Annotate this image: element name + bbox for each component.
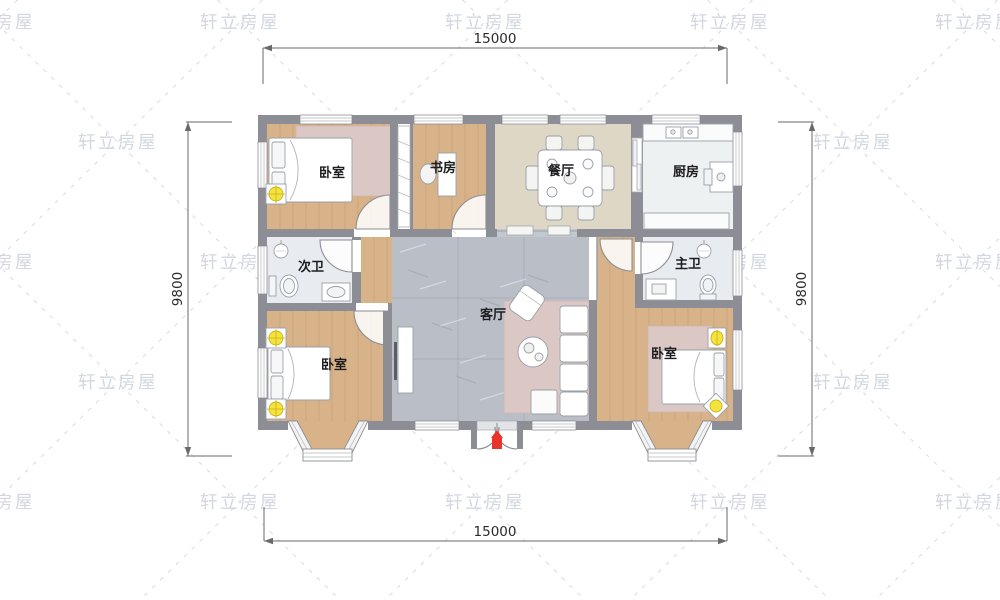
watermark-text: 轩立房屋 bbox=[935, 493, 1000, 513]
dimension-top: 15000 bbox=[263, 31, 727, 84]
watermark-text: 轩立房屋 bbox=[78, 373, 158, 393]
wall-study-dining bbox=[486, 124, 495, 229]
wall-bath2-bottom-stub bbox=[388, 303, 392, 311]
watermark-text: 轩立房屋 bbox=[813, 373, 893, 393]
watermark-text: 轩立房屋 bbox=[200, 13, 280, 33]
dimension-top-value: 15000 bbox=[474, 31, 517, 47]
watermark-text: 轩立房屋 bbox=[200, 493, 280, 513]
window-symbol bbox=[300, 115, 352, 124]
wardrobe-strip bbox=[398, 126, 410, 227]
floor-plan-svg: 轩立房屋轩立房屋轩立房屋轩立房屋轩立房屋轩立房屋轩立房屋轩立房屋轩立房屋轩立房屋… bbox=[0, 0, 1000, 600]
watermark-text: 轩立房屋 bbox=[0, 493, 35, 513]
watermark-text: 轩立房屋 bbox=[0, 253, 35, 273]
dimension-right: 9800 bbox=[778, 122, 815, 456]
watermark-text: 轩立房屋 bbox=[935, 13, 1000, 33]
room-label-bath-secondary: 次卫 bbox=[298, 259, 324, 275]
room-label-study: 书房 bbox=[430, 160, 456, 176]
wall-bedroom2-right bbox=[383, 311, 392, 421]
wall-bath1-left-a bbox=[635, 237, 643, 242]
watermark-text: 轩立房屋 bbox=[445, 493, 525, 513]
window-symbol bbox=[652, 115, 700, 124]
room-label-living: 客厅 bbox=[480, 307, 506, 323]
ceiling-lamp-icon bbox=[708, 328, 726, 348]
wall-bottom-seg1 bbox=[258, 421, 288, 430]
wall-bath1-left-b bbox=[635, 274, 643, 300]
watermark-text: 轩立房屋 bbox=[690, 493, 770, 513]
window-symbol bbox=[733, 132, 742, 186]
window-symbol bbox=[258, 348, 267, 398]
room-label-bedroom-bottom-right: 卧室 bbox=[651, 346, 677, 362]
window-symbol bbox=[532, 421, 576, 430]
entrance-post-left bbox=[471, 421, 477, 449]
wall-bath2-right-a bbox=[352, 237, 361, 240]
ceiling-lamp-icon bbox=[266, 328, 286, 348]
room-label-kitchen: 厨房 bbox=[673, 164, 699, 180]
window-symbol bbox=[733, 250, 742, 296]
window-symbol bbox=[415, 421, 459, 430]
coffee-table-symbol bbox=[518, 337, 548, 367]
dimension-right-value: 9800 bbox=[794, 272, 810, 306]
room-label-bedroom-bottom-left: 卧室 bbox=[321, 357, 347, 373]
wall-bottom-seg4 bbox=[712, 421, 742, 430]
room-label-dining: 餐厅 bbox=[547, 163, 574, 179]
entrance-marker-icon bbox=[491, 430, 503, 449]
kitchen-sliding-door bbox=[632, 138, 642, 192]
ceiling-lamp-icon bbox=[266, 184, 286, 204]
watermark-text: 轩立房屋 bbox=[935, 253, 1000, 273]
dimension-bottom-value: 15000 bbox=[474, 524, 517, 540]
entrance-post-right bbox=[517, 421, 523, 449]
watermark-text: 轩立房屋 bbox=[445, 13, 525, 33]
wall-bedroom3-left bbox=[589, 300, 597, 421]
dimension-left: 9800 bbox=[170, 122, 232, 456]
dimension-left-value: 9800 bbox=[170, 272, 186, 306]
ceiling-lamp-icon bbox=[266, 399, 286, 419]
entrance bbox=[477, 421, 517, 449]
wall-h1-c bbox=[486, 229, 497, 237]
window-symbol bbox=[733, 330, 742, 390]
wall-bedroom-study-sliver bbox=[410, 124, 413, 229]
room-label-bedroom-top-left: 卧室 bbox=[319, 165, 345, 181]
wall-bedroom-study bbox=[390, 124, 398, 229]
wall-bath2-right-b bbox=[352, 272, 361, 303]
watermark-text: 轩立房屋 bbox=[0, 13, 35, 33]
wall-bath1-bottom bbox=[635, 300, 733, 308]
floor-plan-page: 轩立房屋轩立房屋轩立房屋轩立房屋轩立房屋轩立房屋轩立房屋轩立房屋轩立房屋轩立房屋… bbox=[0, 0, 1000, 600]
window-symbol bbox=[560, 115, 606, 124]
window-symbol bbox=[502, 115, 548, 124]
window-symbol bbox=[258, 142, 267, 188]
bed-symbol-bottom-left bbox=[268, 347, 330, 400]
window-symbol bbox=[414, 115, 463, 124]
wall-h1-b bbox=[390, 229, 452, 237]
watermark-text: 轩立房屋 bbox=[78, 133, 158, 153]
wall-h1-d bbox=[577, 229, 733, 237]
wall-h1-a bbox=[267, 229, 354, 237]
window-symbol bbox=[258, 246, 267, 294]
room-label-bath-master: 主卫 bbox=[675, 256, 701, 272]
watermark-text: 轩立房屋 bbox=[813, 133, 893, 153]
wall-bath2-bottom bbox=[258, 303, 356, 311]
watermark-text: 轩立房屋 bbox=[690, 13, 770, 33]
